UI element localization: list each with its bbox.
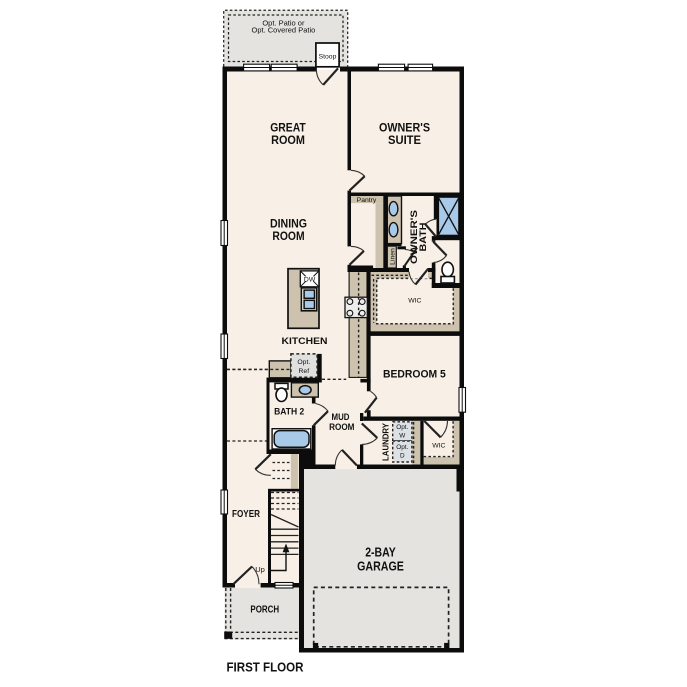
svg-text:SUITE: SUITE — [388, 133, 421, 147]
svg-text:FIRST FLOOR: FIRST FLOOR — [226, 659, 304, 674]
svg-text:2-BAY: 2-BAY — [365, 544, 396, 559]
svg-text:ROOM: ROOM — [329, 422, 354, 432]
svg-text:Pantry: Pantry — [357, 197, 377, 204]
svg-text:ROOM: ROOM — [271, 133, 305, 147]
svg-text:Stoop: Stoop — [319, 54, 337, 61]
svg-text:PORCH: PORCH — [250, 605, 279, 616]
svg-text:GARAGE: GARAGE — [357, 559, 404, 574]
svg-text:Opt.: Opt. — [396, 444, 408, 451]
svg-text:FOYER: FOYER — [232, 509, 261, 520]
svg-text:D: D — [400, 452, 405, 459]
svg-text:MUD: MUD — [332, 412, 350, 422]
svg-text:WIC: WIC — [432, 442, 445, 449]
svg-text:Up: Up — [255, 565, 265, 574]
svg-text:Ref: Ref — [299, 368, 310, 375]
svg-text:Opt.: Opt. — [297, 359, 310, 366]
svg-text:BATH 2: BATH 2 — [274, 406, 304, 416]
svg-text:DW: DW — [304, 276, 316, 283]
svg-text:W: W — [399, 433, 406, 440]
svg-text:BATH: BATH — [418, 223, 428, 252]
svg-text:KITCHEN: KITCHEN — [282, 336, 328, 347]
svg-text:BEDROOM 5: BEDROOM 5 — [383, 369, 446, 381]
svg-text:Linen: Linen — [389, 248, 396, 265]
svg-text:ROOM: ROOM — [272, 229, 304, 243]
svg-text:WIC: WIC — [408, 298, 421, 305]
svg-text:Opt.: Opt. — [396, 424, 408, 431]
svg-text:Opt. Covered Patio: Opt. Covered Patio — [252, 26, 316, 35]
svg-text:LAUNDRY: LAUNDRY — [381, 423, 391, 461]
